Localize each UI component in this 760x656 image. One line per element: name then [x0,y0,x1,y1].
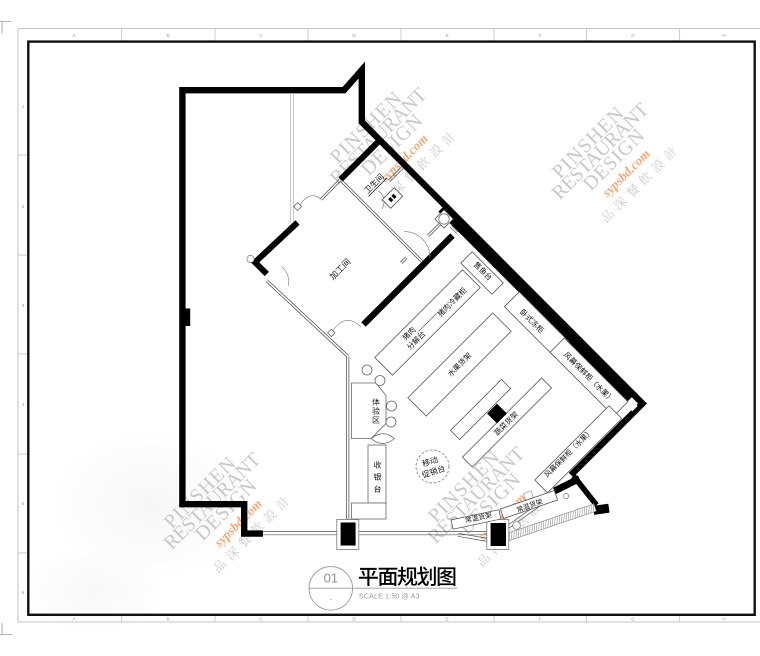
svg-text:SCALE 1:50 @ A3: SCALE 1:50 @ A3 [359,594,420,601]
svg-text:1: 1 [22,104,25,109]
svg-text:6: 6 [22,590,25,595]
svg-text:E: E [445,33,448,38]
svg-text:3: 3 [22,303,25,308]
svg-text:01: 01 [324,571,338,586]
svg-text:F: F [539,617,542,622]
svg-text:H: H [722,33,725,38]
svg-text:4: 4 [22,402,25,407]
svg-text:5: 5 [22,501,25,506]
svg-text:2: 2 [22,204,25,209]
svg-text:G: G [631,617,635,622]
svg-text:H: H [722,617,725,622]
svg-text:B: B [166,33,169,38]
svg-text:E: E [445,617,448,622]
svg-text:B: B [166,617,169,622]
svg-text:F: F [539,33,542,38]
svg-text:G: G [631,33,635,38]
